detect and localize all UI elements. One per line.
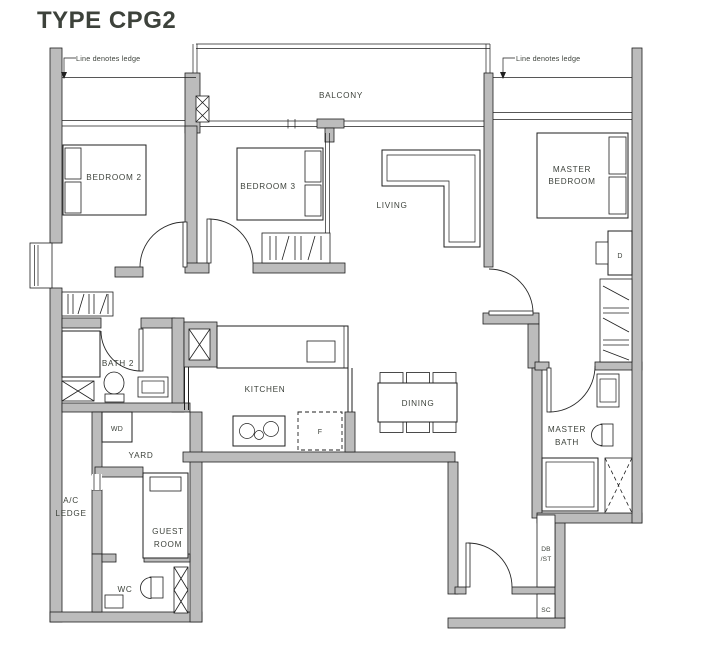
wc-toilet bbox=[141, 577, 164, 599]
bedroom2-bay-window bbox=[30, 243, 52, 288]
bath2-sink bbox=[138, 377, 168, 397]
wardrobe-bedroom2 bbox=[62, 292, 113, 316]
door-master-bath bbox=[547, 366, 595, 412]
shoe-cabinet-box bbox=[537, 594, 555, 618]
room-label-guest-room-2: ROOM bbox=[154, 540, 182, 549]
page-title: TYPE CPG2 bbox=[37, 7, 176, 34]
room-label-ac-ledge-1: A/C bbox=[63, 496, 79, 505]
ledge-annotation-right bbox=[500, 58, 515, 79]
fixture-label-fridge: F bbox=[318, 429, 323, 436]
master-bedroom-window bbox=[493, 113, 632, 120]
kitchen-hob bbox=[233, 416, 285, 446]
room-label-yard: YARD bbox=[129, 451, 154, 460]
ledge-note-left: Line denotes ledge bbox=[76, 54, 140, 63]
room-label-balcony: BALCONY bbox=[319, 91, 363, 100]
master-bath-toilet bbox=[592, 424, 614, 446]
wc-shaft bbox=[174, 567, 188, 613]
room-label-ac-ledge-2: LEDGE bbox=[55, 509, 86, 518]
bath2-toilet bbox=[104, 372, 124, 402]
fixture-label-db: DB bbox=[541, 546, 551, 553]
wc-sink bbox=[105, 595, 123, 608]
room-label-bath2: BATH 2 bbox=[102, 359, 134, 368]
sofa bbox=[382, 150, 480, 247]
yard-louver-window bbox=[92, 474, 102, 490]
room-label-bedroom2: BEDROOM 2 bbox=[86, 173, 141, 182]
door-bedroom2 bbox=[140, 222, 187, 267]
ledge-annotation-left bbox=[61, 58, 76, 79]
floor-plan-svg: TYPE CPG2 Line denotes ledge Line denote… bbox=[0, 0, 711, 646]
door-bedroom3 bbox=[207, 219, 253, 263]
door-master-bedroom bbox=[489, 269, 533, 315]
fixture-label-wd: WD bbox=[111, 426, 123, 433]
bath2-ledge-shaft bbox=[62, 381, 94, 401]
door-entrance bbox=[466, 543, 512, 587]
fixture-label-st: /ST bbox=[541, 556, 552, 563]
balcony-railing bbox=[193, 44, 490, 73]
ledge-note-right: Line denotes ledge bbox=[516, 54, 580, 63]
room-label-master-bedroom-2: BEDROOM bbox=[548, 177, 595, 186]
room-label-master-bedroom-1: MASTER bbox=[553, 165, 591, 174]
wardrobe-bedroom3 bbox=[262, 233, 330, 263]
bed-master bbox=[537, 133, 628, 218]
master-bath-shaft bbox=[605, 458, 632, 513]
master-bath-sink bbox=[597, 374, 619, 407]
fixture-label-dresser: D bbox=[617, 253, 622, 260]
room-label-dining: DINING bbox=[402, 399, 435, 408]
kitchen-shaft bbox=[189, 329, 210, 360]
room-label-wc: WC bbox=[117, 585, 132, 594]
kitchen-counter bbox=[217, 326, 348, 368]
bath2-shower bbox=[62, 331, 100, 377]
room-label-guest-room-1: GUEST bbox=[152, 527, 184, 536]
room-label-living: LIVING bbox=[376, 201, 407, 210]
fixture-label-sc: SC bbox=[541, 607, 551, 614]
room-label-kitchen: KITCHEN bbox=[245, 385, 286, 394]
wardrobe-master bbox=[600, 279, 632, 362]
floor-plan-page: TYPE CPG2 Line denotes ledge Line denote… bbox=[0, 0, 711, 646]
dresser-master bbox=[596, 231, 632, 275]
room-label-master-bath-2: BATH bbox=[555, 438, 579, 447]
balcony-ac-shaft bbox=[196, 96, 209, 122]
room-label-master-bath-1: MASTER bbox=[548, 425, 586, 434]
master-bath-shower bbox=[542, 458, 598, 511]
bedroom2-window bbox=[62, 121, 185, 127]
room-label-bedroom3: BEDROOM 3 bbox=[240, 182, 295, 191]
